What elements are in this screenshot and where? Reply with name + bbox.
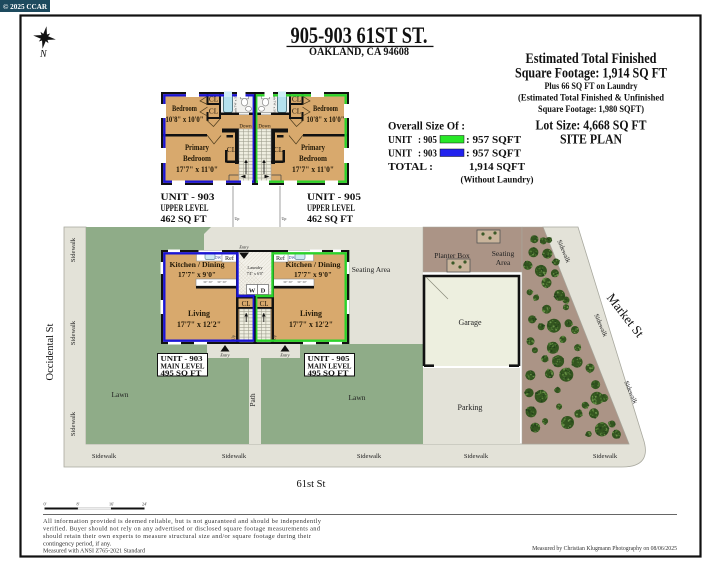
svg-text:Up: Up xyxy=(235,216,240,221)
svg-text:Lawn: Lawn xyxy=(111,390,128,399)
svg-text:All information provided is de: All information provided is deemed relia… xyxy=(43,518,322,525)
svg-text:Laundry: Laundry xyxy=(247,265,263,270)
svg-text:CL: CL xyxy=(209,108,218,116)
svg-text:Living: Living xyxy=(300,309,323,318)
svg-text:Sidewalk: Sidewalk xyxy=(70,237,77,262)
svg-text:contingency period, if any.: contingency period, if any. xyxy=(43,541,112,548)
svg-text:Lot Size: 4,668 SQ FT: Lot Size: 4,668 SQ FT xyxy=(536,118,647,133)
svg-text:30" 30": 30" 30" xyxy=(283,280,293,284)
svg-text:Bedroom: Bedroom xyxy=(313,104,338,113)
svg-text:Parking: Parking xyxy=(458,403,483,412)
svg-text:Path: Path xyxy=(248,393,257,407)
svg-text:(Without Laundry): (Without Laundry) xyxy=(461,175,534,186)
svg-text:16': 16' xyxy=(109,502,114,507)
svg-text:should retain their own expert: should retain their own experts to measu… xyxy=(43,533,312,540)
svg-text:N: N xyxy=(39,49,48,60)
svg-text:Area: Area xyxy=(496,258,511,267)
svg-text:verified. Buyer should not rel: verified. Buyer should not rely on any a… xyxy=(43,526,321,533)
svg-text:Entry: Entry xyxy=(238,245,248,250)
svg-text:495 SQ FT: 495 SQ FT xyxy=(161,370,202,378)
svg-text:462 SQ FT: 462 SQ FT xyxy=(161,214,208,225)
svg-text:Entry: Entry xyxy=(279,353,289,358)
svg-text:1,914 SQFT: 1,914 SQFT xyxy=(469,161,526,173)
svg-text:24': 24' xyxy=(142,502,147,507)
svg-text:Kitchen / Dining: Kitchen / Dining xyxy=(170,260,225,269)
svg-text:Bedroom: Bedroom xyxy=(172,104,197,113)
svg-text:Entry: Entry xyxy=(219,353,229,358)
svg-text:Up: Up xyxy=(282,216,287,221)
svg-text:Kitchen / Dining: Kitchen / Dining xyxy=(286,260,341,269)
svg-text:W: W xyxy=(249,288,256,295)
svg-text:30" 30": 30" 30" xyxy=(217,280,227,284)
svg-text:Primary: Primary xyxy=(185,143,210,152)
svg-text:CL: CL xyxy=(292,108,301,116)
svg-text:8': 8' xyxy=(77,502,80,507)
svg-text:Up: Up xyxy=(231,335,236,340)
svg-text:UNIT: UNIT xyxy=(388,134,413,146)
svg-text:Square Footage: 1,914 SQ FT: Square Footage: 1,914 SQ FT xyxy=(515,66,667,82)
svg-text:17'7" x 12'2": 17'7" x 12'2" xyxy=(177,320,221,329)
svg-text:Plus 66 SQ FT on Laundry: Plus 66 SQ FT on Laundry xyxy=(545,81,638,91)
svg-text:Down: Down xyxy=(239,125,252,130)
svg-text:905-903 61ST ST.: 905-903 61ST ST. xyxy=(291,23,428,48)
svg-text:Square Footage: 1,980 SQFT): Square Footage: 1,980 SQFT) xyxy=(538,104,644,114)
svg-text:Occidental St: Occidental St xyxy=(45,323,56,380)
svg-text:17'7" x 11'0": 17'7" x 11'0" xyxy=(292,165,334,174)
svg-text:Garage: Garage xyxy=(458,318,482,327)
svg-text:Bedroom: Bedroom xyxy=(183,154,211,163)
svg-text:Primary: Primary xyxy=(301,143,326,152)
svg-text:(Estimated Total Finished & Un: (Estimated Total Finished & Unfinished xyxy=(518,93,664,103)
svg-text:Ref: Ref xyxy=(276,255,286,262)
svg-text:Seating: Seating xyxy=(492,249,515,258)
svg-text:Measured by Christian Klugmann: Measured by Christian Klugmann Photograp… xyxy=(532,546,677,552)
svg-text:Sidewalk: Sidewalk xyxy=(464,453,489,460)
svg-text:CL: CL xyxy=(274,146,283,154)
svg-text:SITE PLAN: SITE PLAN xyxy=(560,132,622,147)
svg-text:Sidewalk: Sidewalk xyxy=(593,453,618,460)
svg-text:Seating Area: Seating Area xyxy=(352,265,391,274)
svg-text:495 SQ FT: 495 SQ FT xyxy=(308,370,349,378)
svg-text:TOTAL :: TOTAL : xyxy=(388,161,433,173)
svg-text:CL: CL xyxy=(242,301,251,308)
svg-text:UNIT: UNIT xyxy=(388,148,413,160)
svg-text:Up: Up xyxy=(272,335,277,340)
svg-text:Sidewalk: Sidewalk xyxy=(92,453,117,460)
svg-text:17'7" x 9'0": 17'7" x 9'0" xyxy=(178,270,216,279)
svg-text:Bedroom: Bedroom xyxy=(299,154,327,163)
svg-text:10'8" x 10'0": 10'8" x 10'0" xyxy=(307,115,345,124)
svg-text:CL: CL xyxy=(260,301,269,308)
svg-text:Planter Box: Planter Box xyxy=(434,251,470,260)
svg-text:: 905: : 905 xyxy=(418,134,437,146)
svg-text:CL: CL xyxy=(209,96,218,104)
svg-text:30" 30": 30" 30" xyxy=(203,280,213,284)
svg-text:CL: CL xyxy=(292,96,301,104)
svg-text:Measured with ANSI Z765-2021 S: Measured with ANSI Z765-2021 Standard xyxy=(43,549,145,555)
svg-text:17'7" x 11'0": 17'7" x 11'0" xyxy=(176,165,218,174)
svg-text:61st St: 61st St xyxy=(297,479,326,490)
svg-text:© 2025 CCAR: © 2025 CCAR xyxy=(3,3,48,11)
svg-text:: 957 SQFT: : 957 SQFT xyxy=(466,148,522,160)
svg-text:UNIT - 903: UNIT - 903 xyxy=(161,192,215,203)
svg-text:: 957 SQFT: : 957 SQFT xyxy=(466,134,522,146)
svg-text:Sidewalk: Sidewalk xyxy=(70,320,77,345)
svg-text:Ref: Ref xyxy=(225,255,235,262)
svg-text:Lawn: Lawn xyxy=(348,393,365,402)
svg-text:30" 30": 30" 30" xyxy=(297,280,307,284)
svg-text:OAKLAND, CA 94608: OAKLAND, CA 94608 xyxy=(309,46,409,58)
svg-text:D: D xyxy=(261,288,266,295)
svg-text:Bath 7'4" x 5'0": Bath 7'4" x 5'0" xyxy=(273,93,277,115)
svg-text:Overall Size Of :: Overall Size Of : xyxy=(388,121,465,133)
svg-text:CL: CL xyxy=(227,146,236,154)
svg-text:7'4" x 6'0": 7'4" x 6'0" xyxy=(247,271,264,276)
svg-text:UPPER LEVEL: UPPER LEVEL xyxy=(161,203,209,214)
svg-text:Sidewalk: Sidewalk xyxy=(70,411,77,436)
svg-text:17'7" x 9'0": 17'7" x 9'0" xyxy=(294,270,332,279)
svg-text:UNIT - 905: UNIT - 905 xyxy=(307,192,361,203)
svg-text:462 SQ FT: 462 SQ FT xyxy=(307,214,354,225)
svg-text:Sidewalk: Sidewalk xyxy=(357,453,382,460)
svg-text:10'8" x 10'0": 10'8" x 10'0" xyxy=(166,115,204,124)
svg-text:Living: Living xyxy=(188,309,211,318)
svg-text:17'7" x 12'2": 17'7" x 12'2" xyxy=(289,320,333,329)
svg-text:0': 0' xyxy=(44,502,47,507)
svg-text:Down: Down xyxy=(258,125,271,130)
svg-text:UPPER LEVEL: UPPER LEVEL xyxy=(307,203,355,214)
svg-text:Sidewalk: Sidewalk xyxy=(222,453,247,460)
svg-text:: 903: : 903 xyxy=(418,148,437,160)
